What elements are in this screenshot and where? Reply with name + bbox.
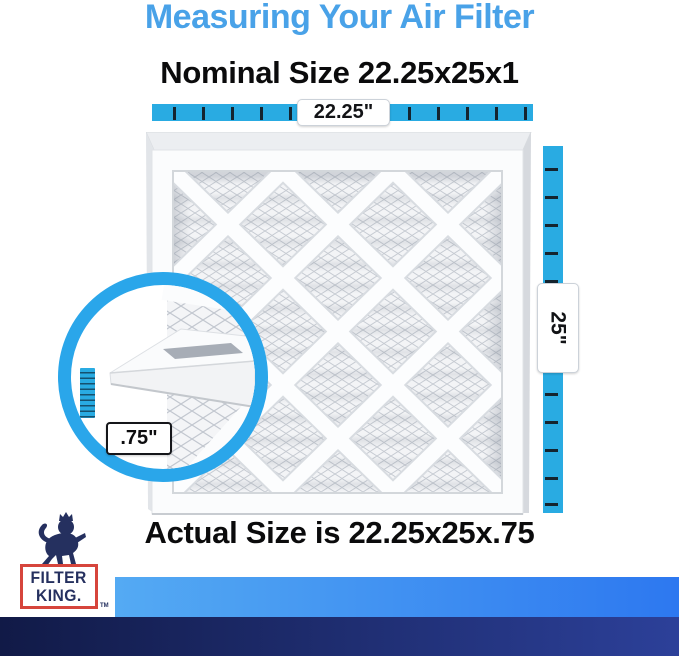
ruler-tick <box>437 107 440 120</box>
depth-mini-ruler <box>80 368 95 418</box>
filter-top-face <box>146 132 531 150</box>
height-value: 25" <box>546 311 570 344</box>
width-dimension-label: 22.25" <box>297 99 390 126</box>
ruler-tick <box>545 196 558 199</box>
ruler-tick <box>231 107 234 120</box>
ruler-tick <box>202 107 205 120</box>
filter-right-edge <box>523 132 531 513</box>
lion-crown-icon <box>26 511 92 569</box>
bottom-accent-bar <box>115 577 679 617</box>
page-title: Measuring Your Air Filter <box>0 0 679 37</box>
logo-trademark: TM <box>100 603 109 609</box>
ruler-tick <box>545 421 558 424</box>
ruler-tick <box>545 224 558 227</box>
ruler-tick <box>173 107 176 120</box>
height-dimension-label: 25" <box>537 283 579 373</box>
ruler-tick <box>524 107 527 120</box>
ruler-tick <box>545 503 558 506</box>
logo-wordmark-box: FILTER KING. <box>20 564 98 609</box>
depth-value: .75" <box>120 427 157 450</box>
nominal-size-heading: Nominal Size 22.25x25x1 <box>0 54 679 91</box>
measuring-infographic: Measuring Your Air Filter Nominal Size 2… <box>0 0 679 656</box>
ruler-tick <box>289 107 292 120</box>
frame-corner-wedge <box>110 329 255 407</box>
ruler-tick <box>545 168 558 171</box>
ruler-tick <box>260 107 263 120</box>
ruler-tick <box>545 477 558 480</box>
ruler-tick <box>408 107 411 120</box>
logo-line1: FILTER <box>31 569 87 587</box>
logo-line2: KING. <box>36 587 82 605</box>
ruler-tick <box>545 393 558 396</box>
width-value: 22.25" <box>314 101 374 124</box>
ruler-tick <box>466 107 469 120</box>
ruler-tick <box>495 107 498 120</box>
ruler-tick <box>545 449 558 452</box>
filter-king-logo: FILTER KING. TM <box>0 505 115 617</box>
bottom-navy-bar <box>0 617 679 656</box>
ruler-tick <box>545 252 558 255</box>
depth-dimension-label: .75" <box>106 422 172 455</box>
